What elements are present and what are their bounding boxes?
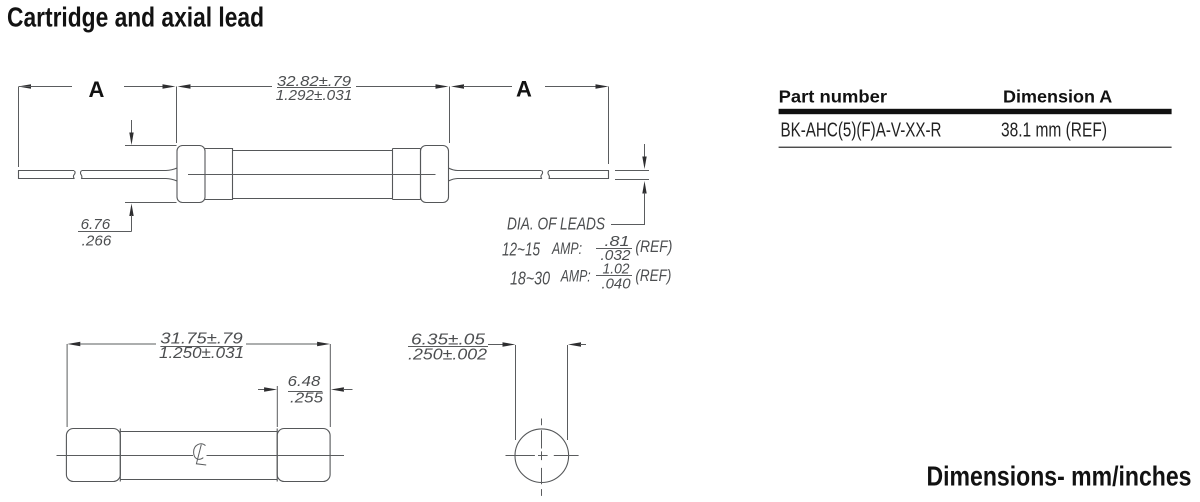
svg-text:38.1 mm (REF): 38.1 mm (REF) bbox=[1001, 120, 1107, 142]
svg-text:Part number: Part number bbox=[779, 86, 888, 106]
svg-text:18~30: 18~30 bbox=[510, 268, 550, 288]
svg-text:AMP:: AMP: bbox=[551, 239, 582, 258]
svg-text:.255: .255 bbox=[290, 389, 324, 406]
svg-text:6.76: 6.76 bbox=[81, 216, 111, 233]
svg-text:BK-AHC(5)(F)A-V-XX-R: BK-AHC(5)(F)A-V-XX-R bbox=[781, 120, 942, 142]
svg-text:A: A bbox=[89, 77, 105, 102]
svg-text:(REF): (REF) bbox=[635, 266, 671, 285]
svg-text:.040: .040 bbox=[602, 275, 632, 292]
svg-text:6.48: 6.48 bbox=[288, 373, 321, 390]
svg-text:12~15: 12~15 bbox=[502, 240, 541, 260]
svg-text:AMP:: AMP: bbox=[560, 267, 591, 286]
svg-text:.266: .266 bbox=[82, 232, 112, 249]
svg-text:A: A bbox=[516, 77, 532, 102]
svg-text:Dimension A: Dimension A bbox=[1003, 86, 1113, 106]
svg-text:Dimensions- mm/inches: Dimensions- mm/inches bbox=[927, 460, 1192, 491]
svg-text:1.292±.031: 1.292±.031 bbox=[276, 87, 352, 104]
svg-text:Cartridge and axial lead: Cartridge and axial lead bbox=[7, 1, 264, 32]
svg-text:DIA. OF LEADS: DIA. OF LEADS bbox=[507, 214, 605, 234]
svg-text:(REF): (REF) bbox=[635, 237, 672, 256]
svg-text:1.250±.031: 1.250±.031 bbox=[159, 345, 244, 362]
svg-text:.250±.002: .250±.002 bbox=[408, 347, 487, 364]
